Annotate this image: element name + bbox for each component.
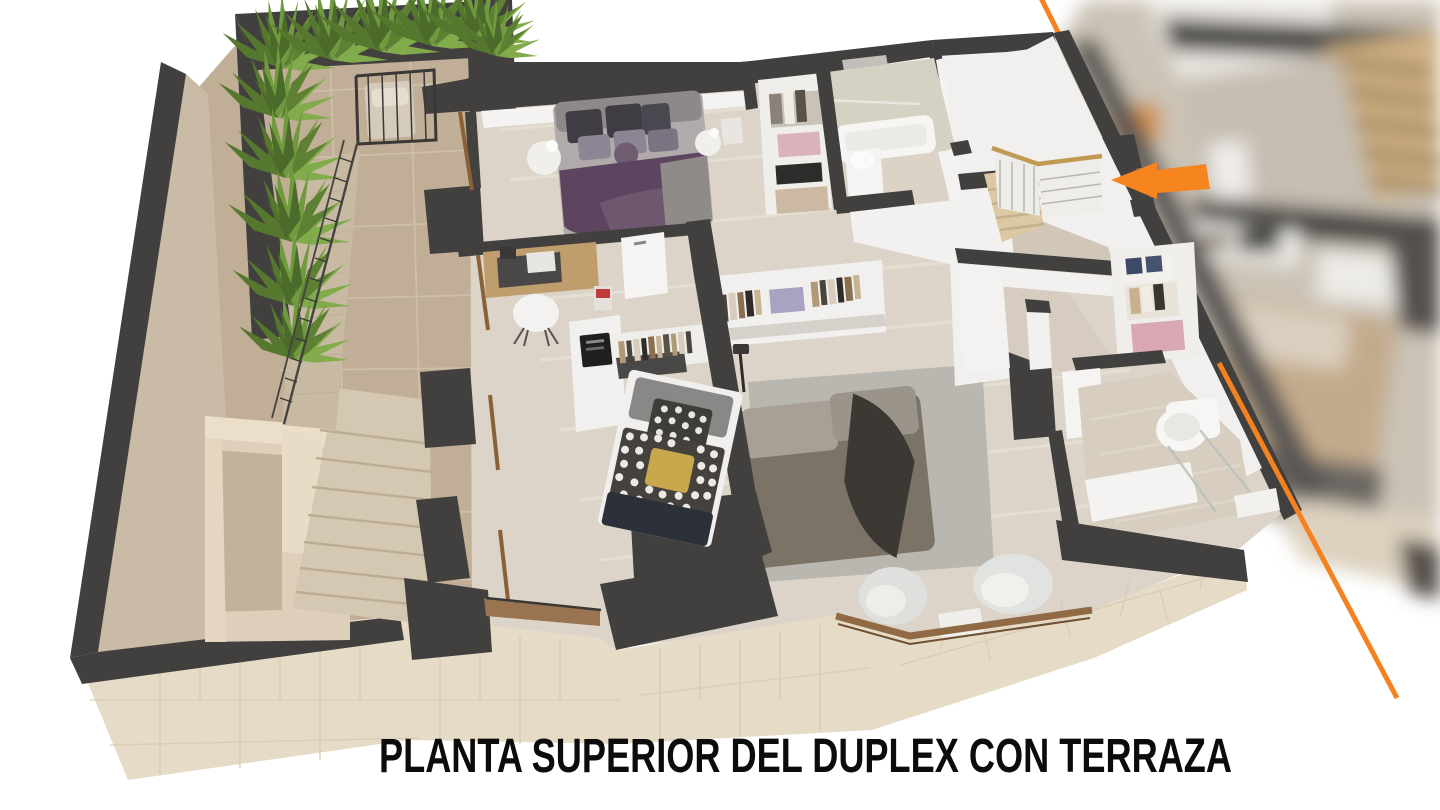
svg-text:PLANTA SUPERIOR DEL DUPLEX CON: PLANTA SUPERIOR DEL DUPLEX CON TERRAZA <box>379 730 1232 783</box>
